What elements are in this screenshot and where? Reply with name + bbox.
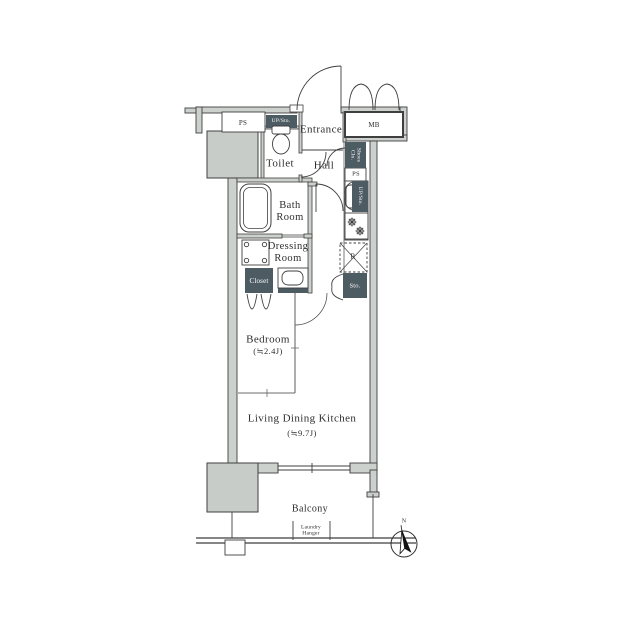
bath-room-line2: Room: [276, 212, 303, 224]
closet-bifold-doors: [247, 294, 271, 309]
shoes-closet-line2: Clo.: [349, 148, 355, 162]
refrigerator-mark: R: [350, 253, 355, 262]
ldk-label: Living Dining Kitchen: [248, 413, 357, 426]
balcony-drain-box: [225, 540, 245, 555]
bedroom-label: Bedroom: [246, 334, 290, 347]
bath-room-line1: Bath: [276, 200, 303, 212]
dressing-door-arc: [295, 293, 327, 325]
toilet-label: Toilet: [266, 158, 294, 171]
bathtub-icon: [240, 184, 271, 232]
hall-door-arc: [316, 184, 343, 211]
pillar-top: [207, 131, 258, 178]
storage-doors: [332, 274, 343, 300]
bath-room-label: Bath Room: [276, 200, 303, 224]
shoes-closet-line1: Shoes: [355, 148, 361, 162]
stove-box: [345, 213, 368, 239]
ldk-size-label: (≒9.7J): [287, 429, 317, 439]
ps-right-label: PS: [352, 170, 360, 177]
hall-label: Hall: [314, 160, 335, 173]
pillar-bottom: [207, 463, 258, 512]
bath-folding-door: [282, 235, 304, 237]
storage-label: Sto.: [349, 282, 360, 289]
up-storage-right-label: UP/Sto.: [357, 187, 363, 206]
bedroom-size-label: (≒2.4J): [253, 347, 283, 357]
floor-plan-drawing: [0, 0, 628, 640]
entrance-door-arc: [297, 66, 341, 110]
compass-icon: [391, 524, 417, 557]
toilet-icon: [272, 126, 290, 154]
shoes-closet-label: Shoes Clo.: [349, 148, 362, 162]
meter-box-door-left: [349, 84, 373, 110]
entrance-label: Entrance: [300, 124, 342, 137]
compass-north-label: N: [402, 519, 407, 526]
ps-top-label: PS: [239, 119, 247, 127]
closet-label: Closet: [249, 277, 268, 285]
up-storage-top-label: UP/Sto.: [272, 118, 291, 124]
washbasin-icon: [278, 268, 308, 288]
meter-box-label: MB: [368, 121, 379, 129]
meter-box-door-right: [375, 84, 399, 110]
washing-machine-pan-icon: [242, 240, 269, 265]
dressing-room-label: Dressing Room: [268, 241, 309, 265]
laundry-hanger-line2: Hanger: [301, 531, 321, 537]
balcony-label: Balcony: [292, 503, 328, 515]
dressing-room-line2: Room: [268, 253, 309, 265]
ldk-window: [278, 463, 350, 473]
dressing-room-line1: Dressing: [268, 241, 309, 253]
wall-meter-box: [290, 105, 303, 112]
laundry-hanger-label: Laundry Hanger: [301, 525, 321, 538]
floor-plan: PS UP/Sto. Entrance MB Toilet Hall Shoes…: [0, 0, 628, 640]
